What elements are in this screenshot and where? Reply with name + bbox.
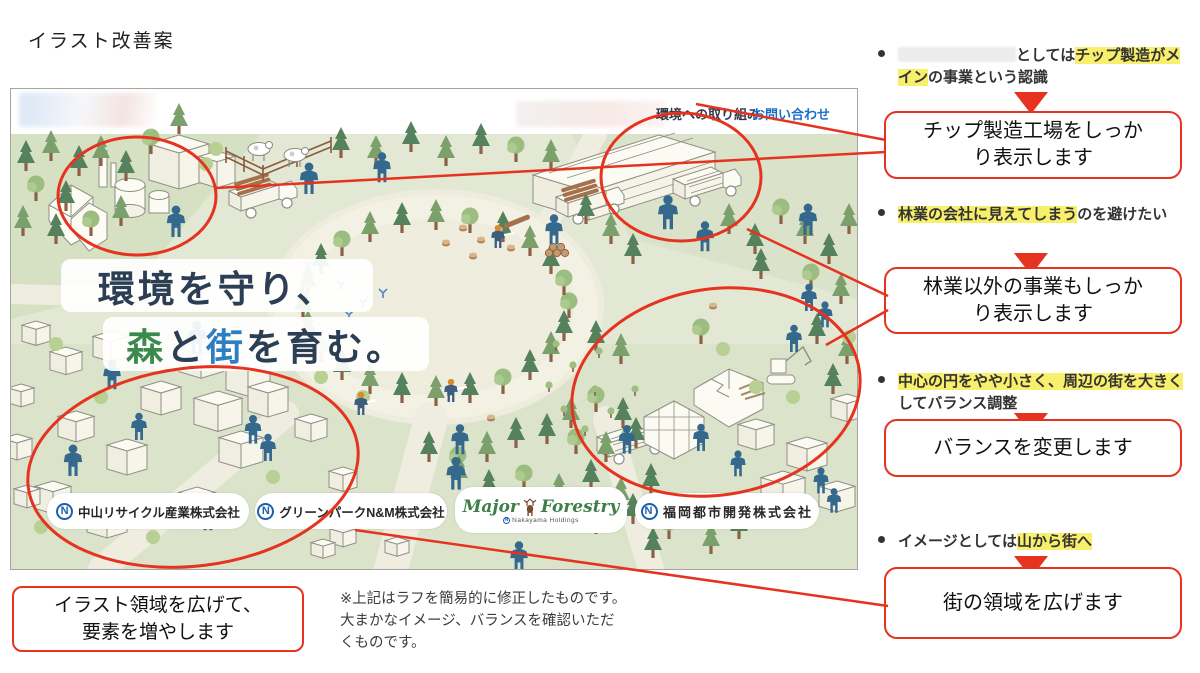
n-logo-icon: N (641, 503, 658, 520)
logo-text: 福岡都市開発株式会社 (663, 502, 813, 521)
callout-box-1: チップ製造工場をしっかり表示します (884, 111, 1182, 179)
bullet-icon (874, 531, 898, 553)
redacted-site-logo (19, 93, 157, 127)
callout-box-4: 街の領域を広げます (884, 567, 1182, 639)
logo-greenpark: N グリーンパークN&M株式会社 (255, 493, 447, 529)
bullet-icon (874, 371, 898, 415)
bullet-icon (874, 45, 898, 89)
footnote: ※上記はラフを簡易的に修正したものです。大まかなイメージ、バランスを確認いただく… (340, 588, 627, 654)
logo-major-forestry: Major Forestry N Nakayama Holdings (455, 487, 627, 533)
nav-link-initiatives[interactable]: 環境への取り組み (656, 104, 760, 123)
bullet-note-2: 林業の会社に見えてしまうのを避けたい (874, 204, 1186, 226)
bullet-note-1: としてはチップ製造がメインの事業という認識 (874, 45, 1186, 89)
bullet-icon (874, 204, 898, 226)
headline-line1: 環境を守り、 (61, 259, 373, 312)
callout-box-3: バランスを変更します (884, 419, 1182, 477)
logo-word2: Forestry (541, 497, 620, 517)
page-title: イラスト改善案 (28, 26, 175, 53)
website-screenshot: 環境への取り組み お問い合わせ 環境を守り、 森と街を育む。 N 中山リサイクル… (10, 88, 858, 570)
deer-icon (522, 497, 538, 517)
nav-link-contact[interactable]: お問い合わせ (752, 104, 830, 123)
redacted-company-name (516, 101, 666, 127)
n-logo-icon: N (257, 503, 274, 520)
bullet-note-3: 中心の円をやや小さく、周辺の街を大きくしてバランス調整 (874, 371, 1186, 415)
logo-text: 中山リサイクル産業株式会社 (78, 502, 240, 521)
n-logo-icon: N (56, 503, 73, 520)
n-logo-icon: N (503, 517, 510, 524)
logo-word1: Major (463, 497, 519, 517)
headline-line2: 森と街を育む。 (103, 317, 429, 371)
logo-nakayama-recycle: N 中山リサイクル産業株式会社 (47, 493, 249, 529)
logo-fukuoka-toshi: N 福岡都市開発株式会社 (635, 493, 819, 529)
callout-expand-illustration: イラスト領域を広げて、要素を増やします (12, 586, 304, 652)
callout-box-2: 林業以外の事業もしっかり表示します (884, 267, 1182, 334)
bullet-note-4: イメージとしては山から街へ (874, 531, 1186, 553)
logo-text: グリーンパークN&M株式会社 (279, 502, 444, 521)
logo-subtext: Nakayama Holdings (512, 517, 579, 524)
